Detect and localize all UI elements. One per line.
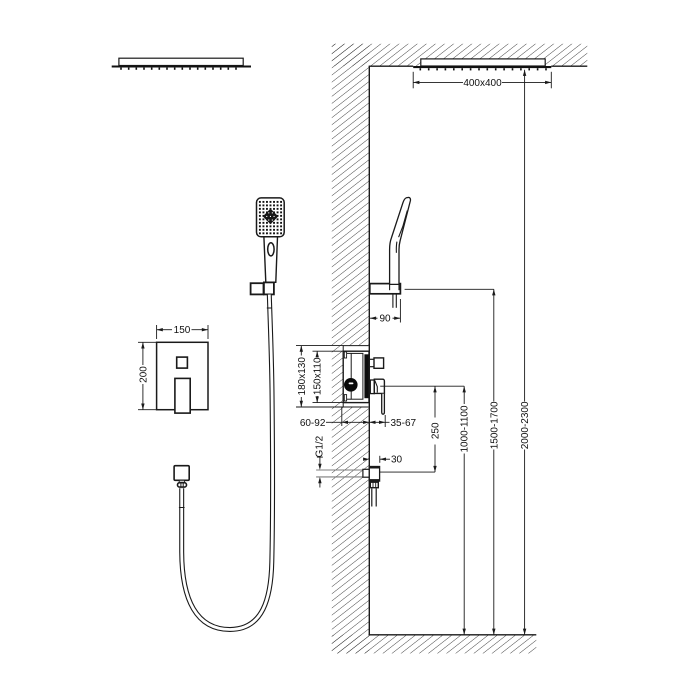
svg-text:60-92: 60-92 bbox=[300, 418, 326, 429]
svg-text:180x130: 180x130 bbox=[297, 357, 308, 396]
svg-text:2000-2300: 2000-2300 bbox=[520, 401, 531, 449]
svg-text:1000-1100: 1000-1100 bbox=[460, 405, 471, 453]
svg-text:150: 150 bbox=[174, 325, 191, 336]
svg-text:400x400: 400x400 bbox=[463, 78, 502, 89]
svg-text:150x110: 150x110 bbox=[313, 357, 324, 395]
svg-text:30: 30 bbox=[391, 455, 403, 466]
svg-text:35-67: 35-67 bbox=[391, 418, 417, 429]
svg-text:200: 200 bbox=[138, 366, 149, 383]
svg-text:G1/2: G1/2 bbox=[315, 435, 326, 457]
svg-text:90: 90 bbox=[379, 314, 391, 325]
svg-text:1500-1700: 1500-1700 bbox=[489, 401, 500, 449]
svg-text:250: 250 bbox=[431, 422, 442, 439]
